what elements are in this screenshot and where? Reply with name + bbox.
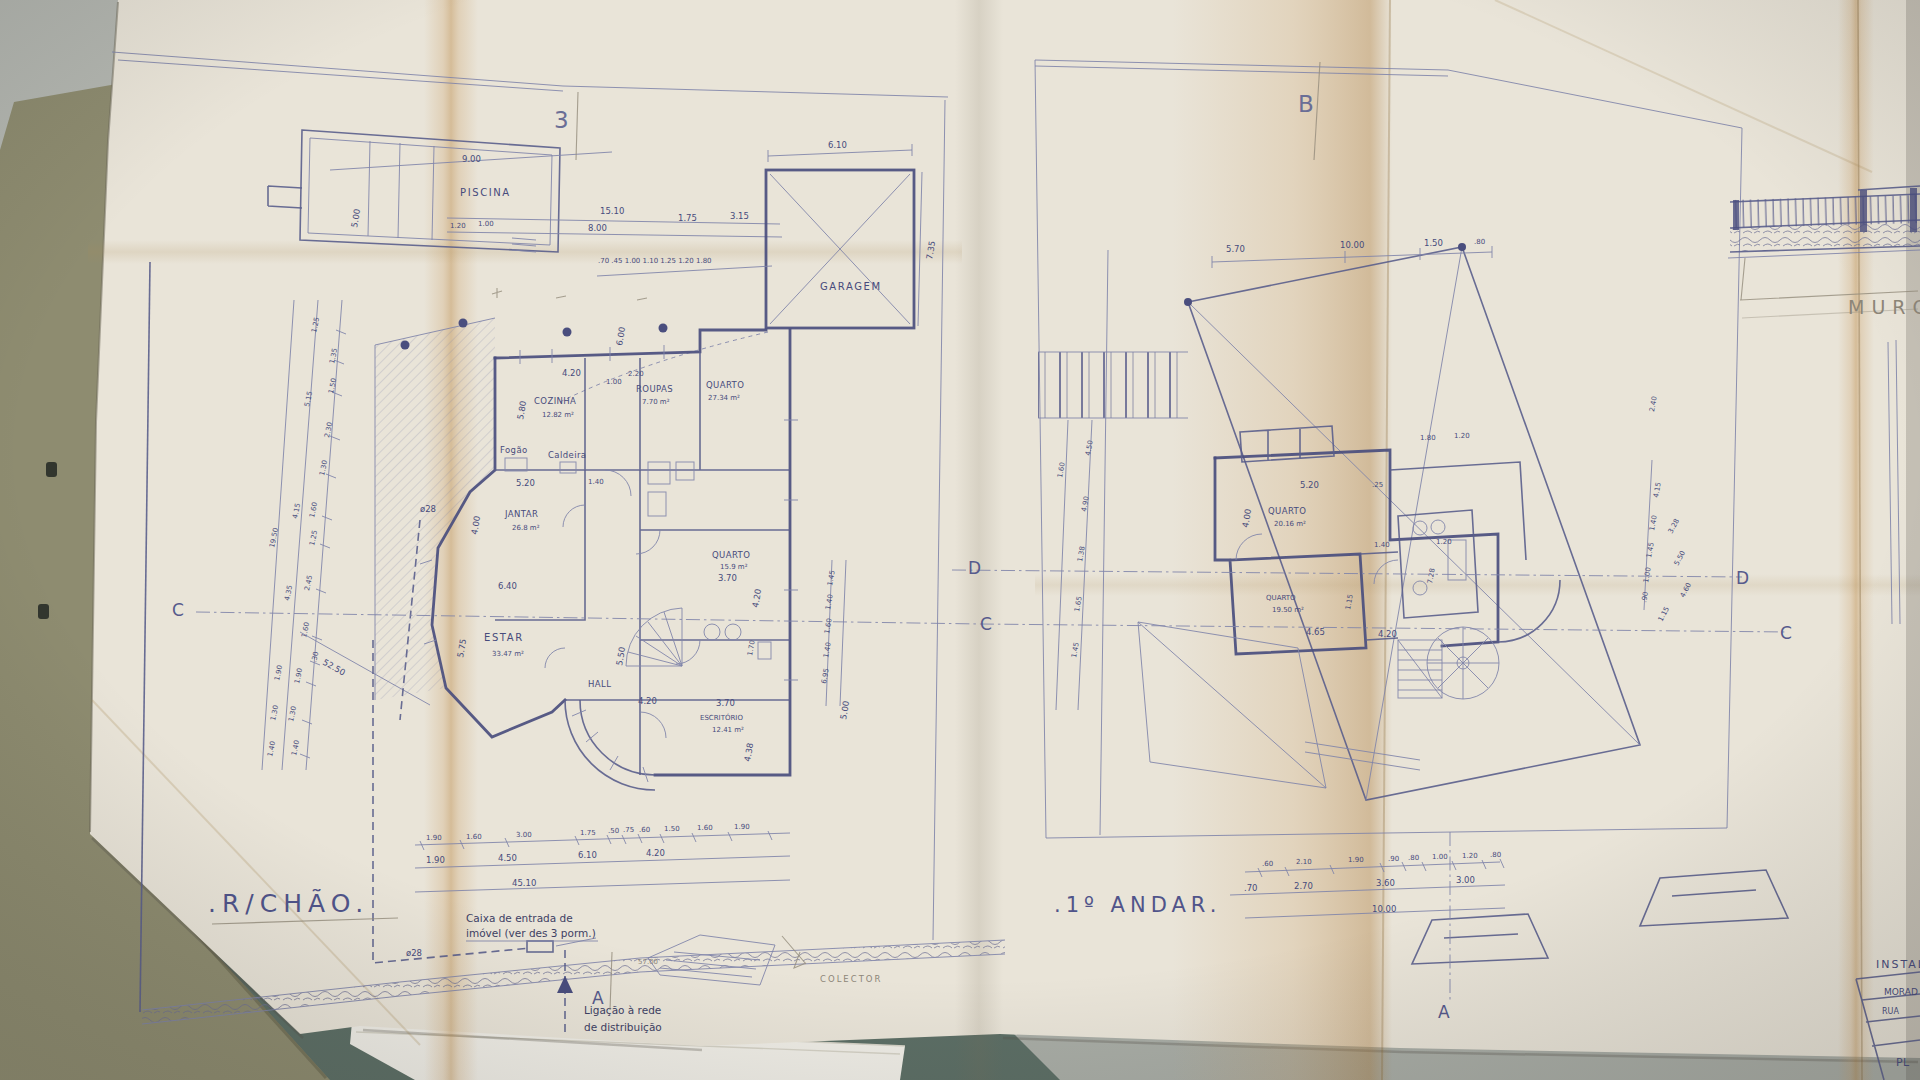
blueprint-photo-svg: PISCINA 9.00 5.00 15.10 8.00 1.20 1.00 G…: [0, 0, 1920, 1080]
photo-of-blueprint: PISCINA 9.00 5.00 15.10 8.00 1.20 1.00 G…: [0, 0, 1920, 1080]
photo-vignette: [0, 0, 1920, 1080]
